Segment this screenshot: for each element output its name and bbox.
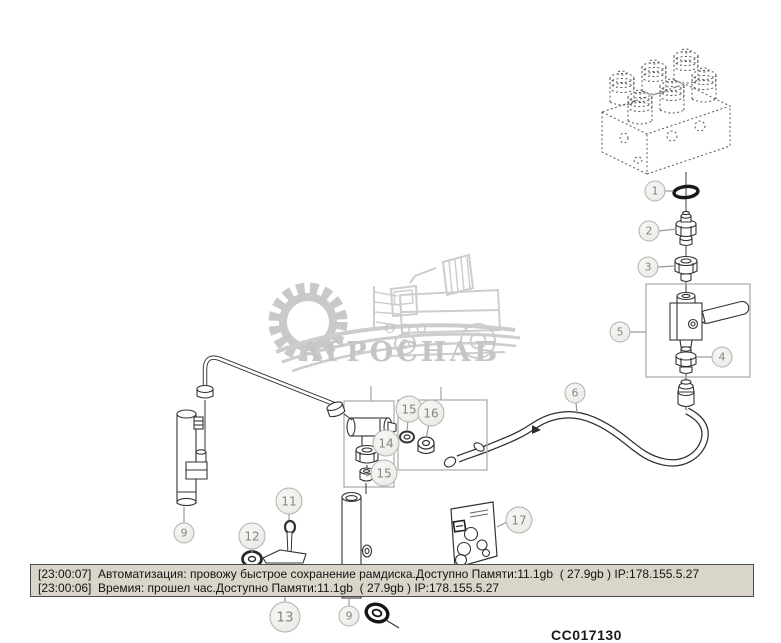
diagram-canvas: ООО АГРОСНАБ [0,0,781,641]
hose-end-fitting [678,380,694,407]
callout-15-lower[interactable]: 15 [371,460,398,487]
callout-2[interactable]: 2 [639,221,660,242]
callout-3-label: 3 [645,261,652,274]
callout-17-label: 17 [511,513,526,527]
callout-9-left-label: 9 [181,527,188,540]
seal-ring-leader [386,620,399,628]
fitting-4 [676,347,696,374]
parts-diagram-page: { "watermark": { "prefix": "ООО", "name"… [0,0,781,641]
callout-1[interactable]: 1 [645,181,666,202]
status-line-1: [23:00:07] Автоматизация: провожу быстро… [38,567,746,581]
manifold-block [602,49,730,174]
callout-12-label: 12 [244,529,259,543]
status-line-2: [23:00:06] Времия: прошел час.Доступно П… [38,581,746,595]
valve-detail-box [646,284,750,377]
nut-3 [675,257,697,282]
callout-9-bottom[interactable]: 9 [339,606,360,627]
callout-14-label: 14 [378,436,393,450]
watermark-prefix: ООО [385,322,432,337]
elbow-end [443,455,458,469]
callout-13-label: 13 [276,609,293,625]
cylinder-left [177,410,207,506]
callout-3[interactable]: 3 [638,257,659,278]
callout-15-lower-label: 15 [376,466,391,480]
callout-15-upper-label: 15 [401,402,416,416]
callout-4[interactable]: 4 [712,347,733,368]
callout-16-label: 16 [423,406,438,420]
callout-11[interactable]: 11 [276,488,303,515]
callout-1-label: 1 [652,185,659,198]
callout-11-label: 11 [281,494,296,508]
bent-pipe [197,358,352,450]
callout-17[interactable]: 17 [506,507,533,534]
solenoid-coils [610,49,716,124]
callout-4-label: 4 [719,351,726,364]
fitting-2 [676,211,696,245]
callout-9-bottom-label: 9 [346,610,353,623]
callout-12[interactable]: 12 [239,523,266,550]
leader-lines [184,191,713,607]
washer-15 [400,432,414,443]
callout-2-label: 2 [646,225,653,238]
watermark-name: АГРОСНАБ [300,337,501,368]
callout-14[interactable]: 14 [373,430,400,457]
callout-5-label: 5 [617,326,624,339]
callout-6[interactable]: 6 [565,383,586,404]
callout-5[interactable]: 5 [610,322,631,343]
lever-valve [670,293,750,348]
seal-ring [364,602,390,625]
hose-core [458,411,705,463]
callout-13[interactable]: 13 [270,602,301,633]
bracket-13 [263,550,306,563]
callout-6-label: 6 [572,387,579,400]
seal-kit-packet [451,502,497,568]
watermark-logo: ООО АГРОСНАБ [274,255,520,371]
status-log-bar: [23:00:07] Автоматизация: провожу быстро… [30,564,754,597]
pipe-nut-left [197,386,213,399]
callout-16[interactable]: 16 [418,400,445,427]
nut-16 [418,437,434,454]
callout-9-left[interactable]: 9 [174,523,195,544]
